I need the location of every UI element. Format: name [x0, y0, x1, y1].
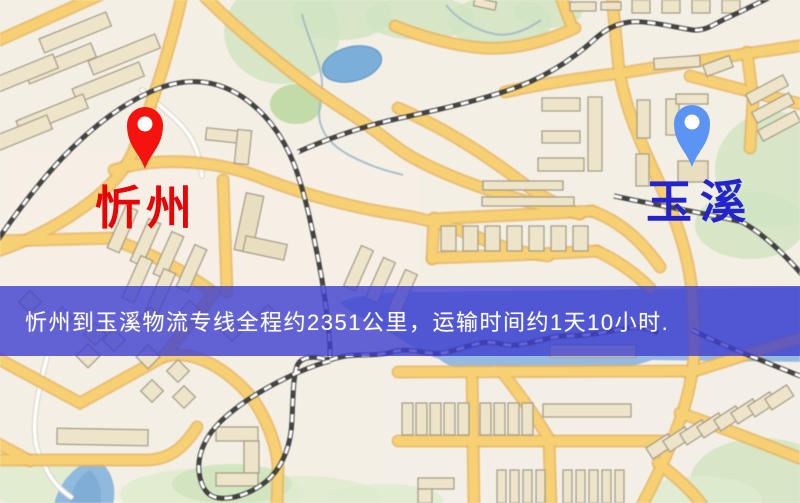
route-info-text: 忻州到玉溪物流专线全程约2351公里，运输时间约1天10小时. [25, 305, 669, 337]
destination-pin-icon[interactable] [674, 105, 710, 167]
destination-label: 玉溪 [646, 177, 754, 228]
origin-label: 忻州 [95, 183, 197, 234]
route-info-banner: 忻州到玉溪物流专线全程约2351公里，运输时间约1天10小时. [0, 286, 800, 356]
logistics-route-map: 忻州 玉溪 忻州到玉溪物流专线全程约2351公里，运输时间约1天10小时. [0, 0, 800, 503]
markers-overlay: 忻州 玉溪 [0, 0, 800, 503]
origin-pin-icon[interactable] [127, 107, 163, 169]
